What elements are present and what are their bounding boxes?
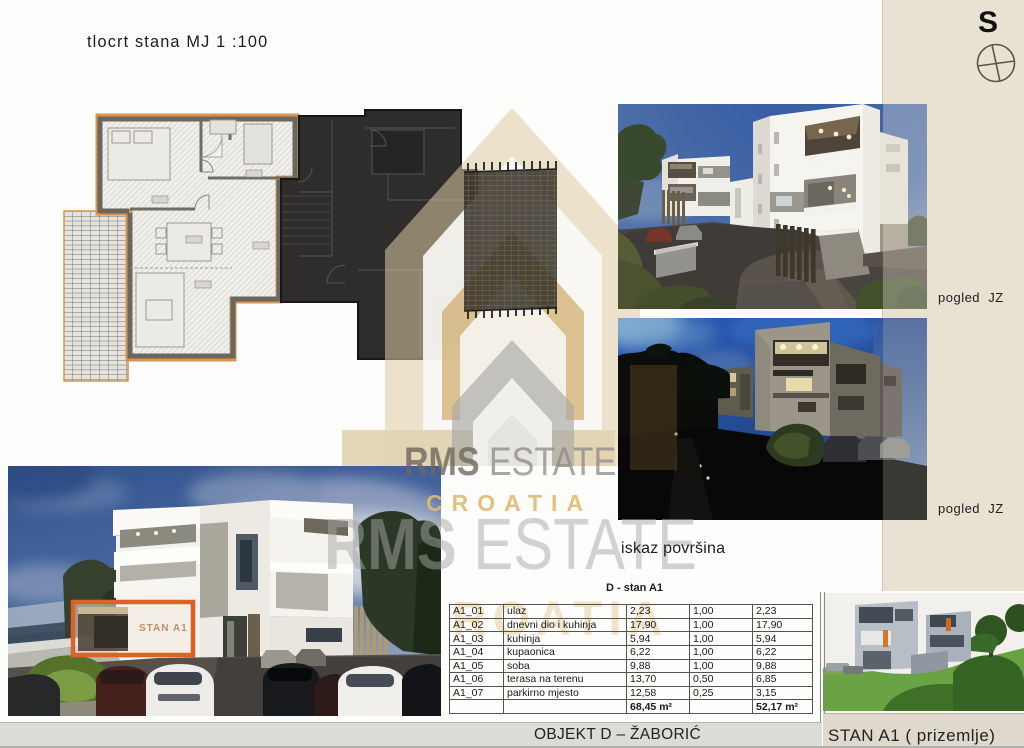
svg-text:STAN A1: STAN A1	[139, 623, 188, 634]
